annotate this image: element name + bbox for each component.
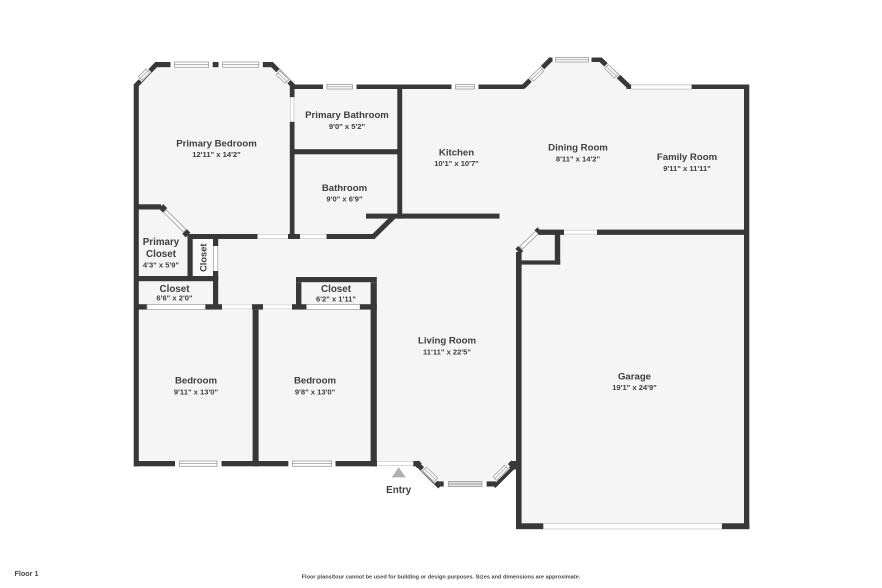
svg-text:19'1" x 24'9": 19'1" x 24'9" xyxy=(612,383,657,392)
svg-text:11'11" x 22'5": 11'11" x 22'5" xyxy=(423,347,471,356)
svg-text:Closet: Closet xyxy=(146,249,177,260)
svg-text:Family Room: Family Room xyxy=(657,152,717,163)
svg-text:9'0" x 5'2": 9'0" x 5'2" xyxy=(329,122,366,131)
svg-text:4'3" x 5'9": 4'3" x 5'9" xyxy=(143,261,180,270)
svg-text:8'11" x 14'2": 8'11" x 14'2" xyxy=(556,154,601,163)
svg-text:Floor 1: Floor 1 xyxy=(15,569,39,578)
svg-text:Primary Bedroom: Primary Bedroom xyxy=(176,139,257,150)
svg-text:Entry: Entry xyxy=(386,485,412,496)
svg-text:Kitchen: Kitchen xyxy=(439,148,474,159)
svg-text:Living Room: Living Room xyxy=(418,335,476,346)
svg-text:6'6" x 2'0": 6'6" x 2'0" xyxy=(156,294,193,303)
svg-text:Dining Room: Dining Room xyxy=(548,143,608,154)
svg-text:9'11" x 11'11": 9'11" x 11'11" xyxy=(663,164,711,173)
svg-text:Closet: Closet xyxy=(198,243,208,271)
svg-text:Bathroom: Bathroom xyxy=(322,183,367,194)
svg-text:6'2" x 1'11": 6'2" x 1'11" xyxy=(316,294,356,303)
svg-text:9'0" x 6'9": 9'0" x 6'9" xyxy=(326,195,363,204)
svg-text:Garage: Garage xyxy=(618,372,651,383)
svg-text:9'11" x 13'0": 9'11" x 13'0" xyxy=(174,387,219,396)
svg-text:10'1" x 10'7": 10'1" x 10'7" xyxy=(434,159,479,168)
svg-text:Bedroom: Bedroom xyxy=(294,375,336,386)
svg-text:12'11" x 14'2": 12'11" x 14'2" xyxy=(192,150,241,159)
svg-text:Primary Bathroom: Primary Bathroom xyxy=(305,110,389,121)
svg-text:Bedroom: Bedroom xyxy=(175,375,217,386)
svg-text:Primary: Primary xyxy=(143,237,180,248)
svg-text:9'8" x 13'0": 9'8" x 13'0" xyxy=(295,387,336,396)
svg-text:Floor plans/tour cannot be use: Floor plans/tour cannot be used for buil… xyxy=(302,574,581,580)
